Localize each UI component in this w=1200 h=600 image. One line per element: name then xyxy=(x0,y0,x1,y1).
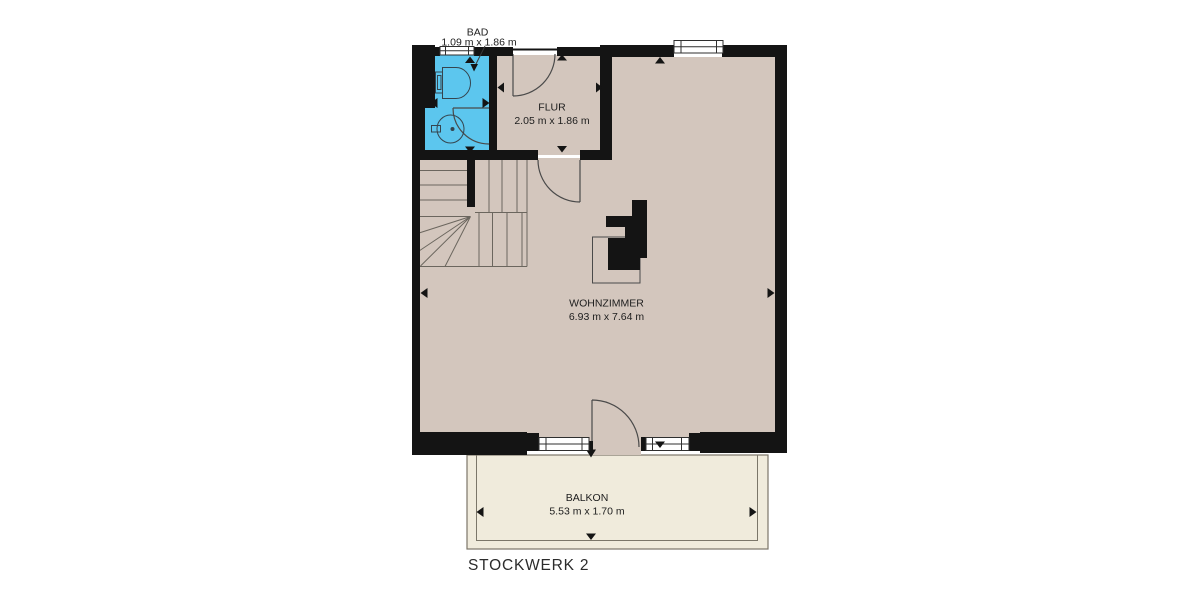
balcony-window-right xyxy=(646,438,689,451)
wall-right xyxy=(775,45,787,453)
balcony xyxy=(467,455,768,549)
floorplan-image: BAD 1.09 m x 1.86 m FLUR 2.05 m x 1.86 m… xyxy=(0,0,1200,600)
wall-top-seg5 xyxy=(722,45,787,57)
wall-pier-3 xyxy=(689,433,700,451)
wall-left-mid xyxy=(412,103,425,153)
wall-stair-stub xyxy=(467,158,475,207)
flur-dimensions: 2.05 m x 1.86 m xyxy=(514,115,590,127)
wall-hall-living xyxy=(600,45,612,160)
livingroom-top-window xyxy=(674,41,723,54)
wall-bottom-left xyxy=(412,432,527,455)
sink-drain xyxy=(451,127,455,131)
wall-hall-bottom-seg2 xyxy=(580,150,612,160)
wall-pier-1 xyxy=(527,433,539,451)
wohnzimmer-label: WOHNZIMMER xyxy=(569,298,644,310)
wall-pier-2 xyxy=(641,437,646,451)
floor-title: STOCKWERK 2 xyxy=(468,557,589,574)
wall-left-lower xyxy=(412,150,420,435)
wall-bottom-right xyxy=(700,432,787,453)
wohnzimmer-dimensions: 6.93 m x 7.64 m xyxy=(569,311,645,323)
balcony-window-left xyxy=(539,438,589,451)
floorplan-svg: BAD 1.09 m x 1.86 m FLUR 2.05 m x 1.86 m… xyxy=(0,0,1200,600)
balcony-outer-border xyxy=(467,455,768,549)
balcony-door-jamb xyxy=(590,441,594,450)
bad-dimensions: 1.09 m x 1.86 m xyxy=(441,37,517,49)
wall-top-seg1 xyxy=(412,47,440,56)
balkon-dimensions: 5.53 m x 1.70 m xyxy=(549,506,625,518)
balcony-door-recess-floor xyxy=(589,437,641,455)
wall-bath-hall xyxy=(489,47,497,160)
balkon-label: BALKON xyxy=(566,492,609,504)
flur-label: FLUR xyxy=(538,102,566,114)
wall-top-door-lintel xyxy=(513,49,557,51)
